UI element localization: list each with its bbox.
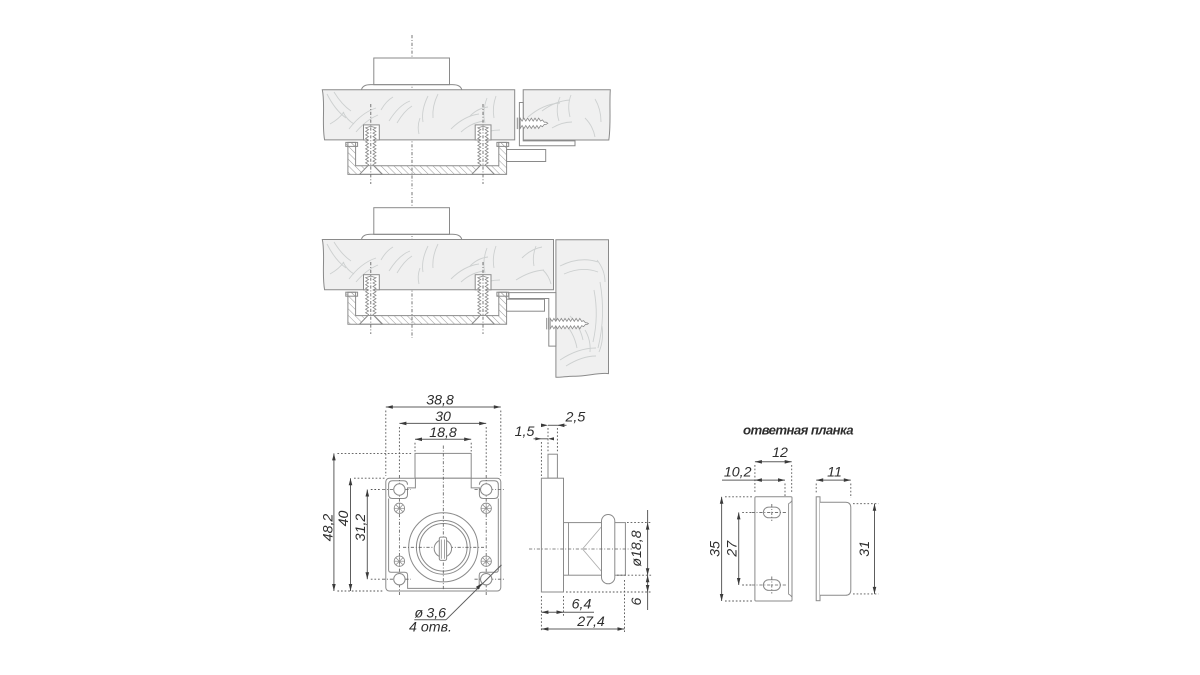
- svg-text:27: 27: [724, 540, 740, 558]
- svg-text:2,5: 2,5: [565, 410, 586, 426]
- svg-text:35: 35: [707, 541, 723, 557]
- svg-text:11: 11: [827, 465, 842, 481]
- svg-text:18,8: 18,8: [429, 425, 457, 441]
- svg-text:4 отв.: 4 отв.: [409, 620, 452, 636]
- svg-text:27,4: 27,4: [576, 614, 605, 630]
- svg-text:1,5: 1,5: [515, 424, 535, 440]
- svg-text:40: 40: [336, 511, 352, 527]
- svg-text:6: 6: [629, 597, 645, 605]
- svg-text:10,2: 10,2: [724, 465, 752, 481]
- svg-text:38,8: 38,8: [426, 393, 454, 409]
- svg-text:12: 12: [772, 445, 788, 461]
- svg-text:31: 31: [857, 541, 873, 557]
- svg-text:31,2: 31,2: [353, 514, 369, 542]
- svg-text:ø18,8: ø18,8: [629, 530, 645, 566]
- svg-text:30: 30: [435, 409, 451, 425]
- svg-text:ответная планка: ответная планка: [743, 422, 853, 437]
- svg-text:6,4: 6,4: [572, 597, 592, 613]
